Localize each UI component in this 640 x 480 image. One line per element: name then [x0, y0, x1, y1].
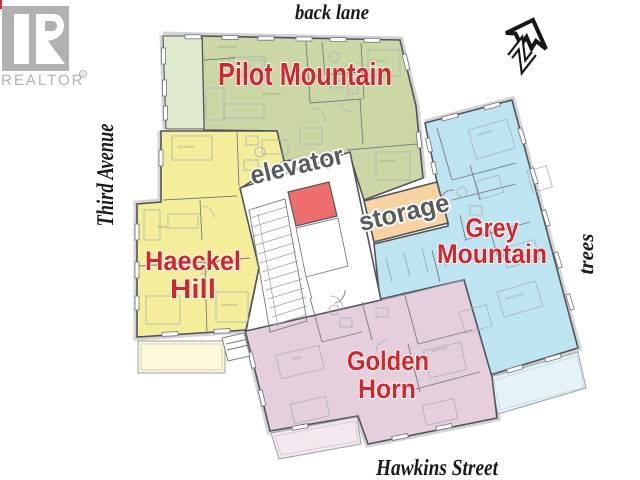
svg-text:Hawkins Street: Hawkins Street — [375, 455, 498, 480]
svg-text:trees: trees — [574, 234, 598, 275]
svg-text:bedroom: bedroom — [178, 144, 194, 149]
svg-text:Third Avenue: Third Avenue — [93, 123, 119, 226]
svg-text:Mountain: Mountain — [437, 239, 547, 269]
svg-text:REALTOR: REALTOR — [1, 72, 84, 89]
svg-text:Golden: Golden — [347, 346, 429, 376]
svg-text:Pilot Mountain: Pilot Mountain — [218, 56, 392, 92]
svg-text:Hill: Hill — [170, 274, 216, 304]
svg-text:Haeckel: Haeckel — [145, 246, 241, 276]
svg-text:bedroom: bedroom — [222, 302, 238, 307]
svg-text:R: R — [81, 73, 85, 79]
svg-text:back lane: back lane — [295, 0, 369, 24]
svg-text:wood deck: wood deck — [218, 44, 237, 49]
svg-text:Horn: Horn — [358, 374, 416, 404]
svg-text:bedroom: bedroom — [380, 158, 396, 163]
svg-text:living: living — [158, 224, 167, 229]
